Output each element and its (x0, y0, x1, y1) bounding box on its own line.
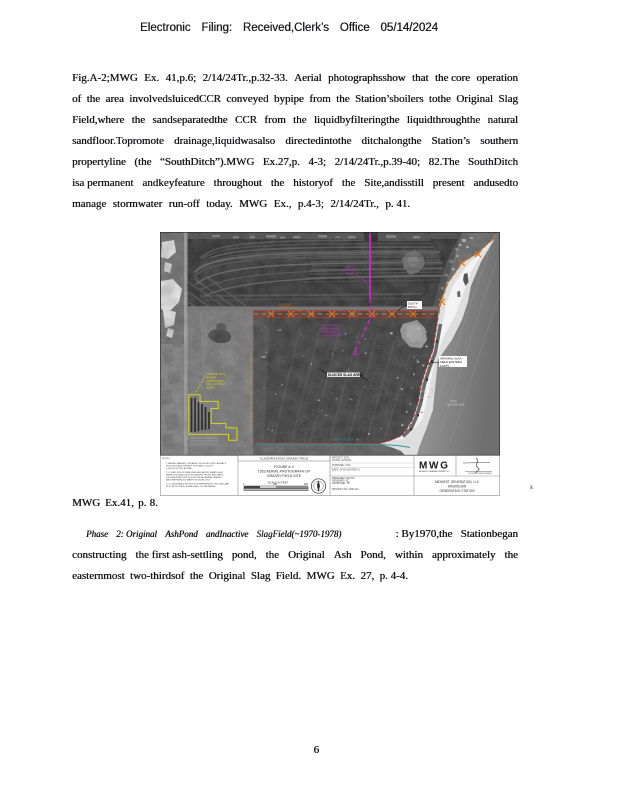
svg-text:CONVEYORS: CONVEYORS (206, 379, 223, 383)
svg-text:SHORELINE: SHORELINE (447, 403, 464, 407)
svg-text:PROJECT NO: 1000-114: PROJECT NO: 1000-114 (332, 488, 359, 491)
svg-text:ORIGINAL SITE: ORIGINAL SITE (206, 372, 226, 376)
svg-text:PLANT: PLANT (206, 386, 215, 390)
svg-text:APPROVED: TB: APPROVED: TB (332, 482, 350, 485)
svg-text:MWG: MWG (419, 461, 448, 472)
svg-text:SLUICED SLAG AREA: SLUICED SLAG AREA (328, 373, 363, 377)
svg-text:PIPES: PIPES (346, 271, 354, 275)
svg-text:SCALE IN FEET: SCALE IN FEET (268, 481, 289, 485)
svg-text:DITCH: DITCH (408, 305, 417, 309)
svg-text:WAUKEGAN: WAUKEGAN (448, 485, 467, 489)
svg-text:FIGURE A-3: FIGURE A-3 (274, 465, 294, 469)
svg-text:APPROXIMATE WESTERN LIMITS OF: APPROXIMATE WESTERN LIMITS OF GRASSY FIE… (250, 354, 253, 428)
svg-text:SCALE: ILLINOIS: SCALE: ILLINOIS (332, 459, 351, 462)
svg-text:N: N (317, 482, 319, 486)
svg-text:BOILER: BOILER (206, 375, 216, 379)
svg-text:MIDWEST GENERATION EME, LLC: MIDWEST GENERATION EME, LLC (419, 470, 451, 473)
svg-text:DATE: 04-25-2024 REV: 0: DATE: 04-25-2024 REV: 0 (332, 469, 361, 472)
svg-text:ILLINOIS NOTED AS MAP: ILLINOIS NOTED AS MAP (166, 467, 193, 470)
svg-text:LIMITS: LIMITS (440, 364, 449, 368)
svg-text:1952 AERIAL PHOTOGRAPH OF: 1952 AERIAL PHOTOGRAPH OF (258, 470, 311, 474)
svg-text:AND REFERENCED MAPPING DATED 2: AND REFERENCED MAPPING DATED 2011 (166, 479, 211, 482)
svg-text:NON-CONTACT: NON-CONTACT (206, 382, 226, 386)
svg-text:SOUTH DITCH: SOUTH DITCH (331, 438, 353, 442)
svg-text:CLASSIFICATION: GRASSY FIELD: CLASSIFICATION: GRASSY FIELD (260, 457, 309, 461)
svg-text:(APPROX): (APPROX) (279, 306, 292, 310)
svg-text:MIDWEST GENERATION, LLC: MIDWEST GENERATION, LLC (435, 480, 480, 484)
svg-text:300: 300 (273, 483, 278, 486)
svg-text:POINT (APPROX): POINT (APPROX) (321, 334, 343, 338)
svg-text:GENERATING STATION: GENERATING STATION (439, 489, 475, 493)
svg-text:SLUICE PIPE: SLUICE PIPE (321, 323, 338, 327)
svg-text:PURPOSE: CCR: PURPOSE: CCR (332, 464, 350, 467)
svg-text:IN ILLINOIS STATE PLANE EAST C: IN ILLINOIS STATE PLANE EAST COORDINATES (166, 485, 216, 488)
svg-text:GRASSY FIELD SITE: GRASSY FIELD SITE (267, 474, 302, 478)
svg-text:600: 600 (304, 483, 309, 486)
svg-text:TRENCH AND: TRENCH AND (321, 327, 339, 331)
svg-text:DISCHARGE: DISCHARGE (321, 330, 337, 334)
svg-text:NOTES:: NOTES: (162, 458, 171, 460)
svg-text:PROFESSIONAL ENGINEER: PROFESSIONAL ENGINEER (468, 472, 492, 475)
